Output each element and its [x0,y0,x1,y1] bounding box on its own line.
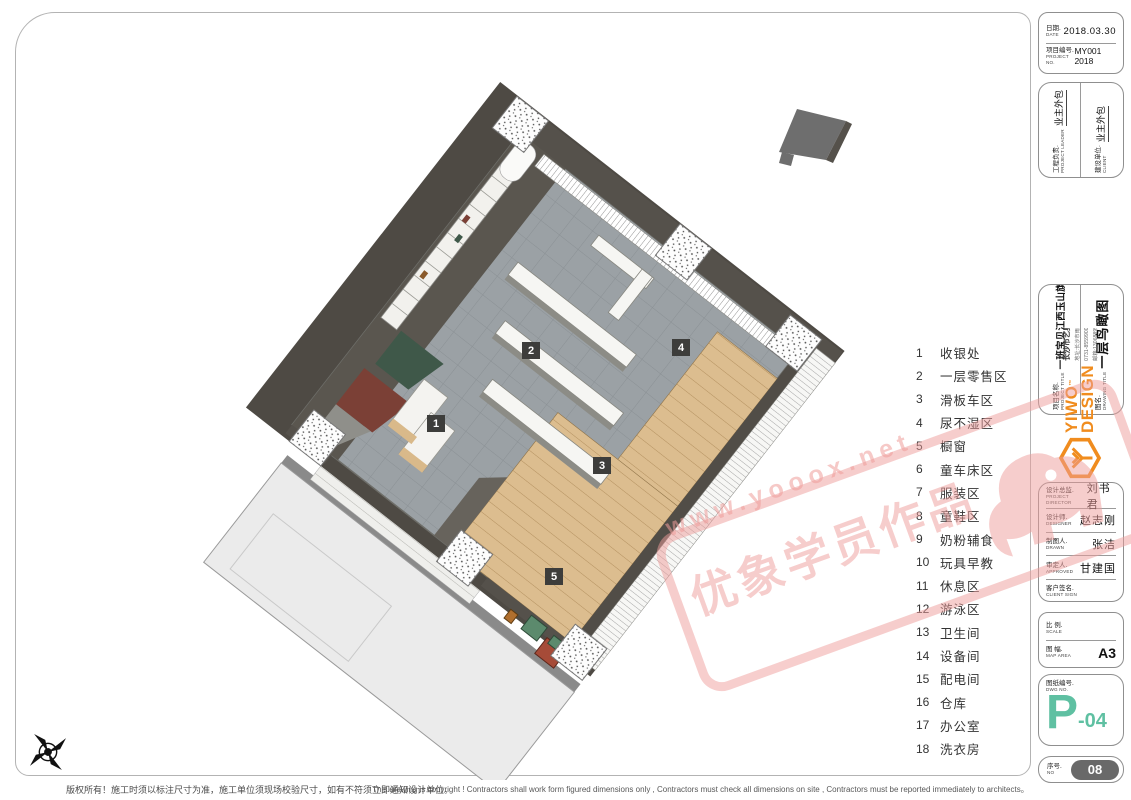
project-no-value: MY001 2018 [1074,46,1116,66]
studio-phone: 0731-85599001 手机:18973138262 [1083,328,1090,361]
legend-item-7: 7服装区 [916,481,1008,504]
dwg-number-box: 图纸编号. DWG NO. P -04 [1038,674,1124,746]
leader-client-box: 工程负责. PROJECT LEADER 业主外包 建设单位. CLIENT 业… [1038,82,1124,178]
sign-panel [779,109,852,166]
legend-item-12: 12游泳区 [916,597,1008,620]
scale-box: 比 例. SCALE 图 幅. MAP AREA A3 [1038,612,1124,668]
plan-marker-4: 4 [672,339,690,356]
plan-marker-5: 5 [545,568,563,585]
legend-item-3: 3滑板车区 [916,388,1008,411]
studio-email: 邮箱:1306889502@QQ.com [1092,328,1099,361]
legend-item-1: 1收银处 [916,341,1008,364]
date-project-box: 日期. DATE 2018.03.30 项目编号. PROJECT No. MY… [1038,12,1124,74]
legend-list: 1收银处2一层零售区3滑板车区4尿不湿区5橱窗6童车床区7服装区8童鞋区9奶粉辅… [916,341,1008,760]
signature-row: 制图人.DRAWN张洁 [1046,533,1116,557]
signature-row: 设计总监.PROJECT DIRECTOR刘书君 [1046,485,1116,509]
dwg-number: P -04 [1046,693,1116,733]
plan-marker-2: 2 [522,342,540,359]
disclaimer-en: This drawing is copyright ! Contractors … [372,784,1029,795]
legend-item-14: 14设备间 [916,644,1008,667]
signature-row: 设计师.DESIGNER赵志刚 [1046,509,1116,533]
client-value: 业主外包 [1094,106,1109,142]
legend-item-16: 16仓库 [916,690,1008,713]
legend-item-15: 15配电间 [916,667,1008,690]
project-no-label: 项目编号. [1046,47,1074,54]
signature-row: 审定人.APPROVED甘建国 [1046,556,1116,580]
serial-box: 序号. NO 08 [1038,756,1124,783]
signatures-box: 设计总监.PROJECT DIRECTOR刘书君设计师.DESIGNER赵志刚制… [1038,482,1124,602]
legend-item-6: 6童车床区 [916,457,1008,480]
legend-item-17: 17办公室 [916,714,1008,737]
plan-marker-1: 1 [427,415,445,432]
company-logo-block: YIWO™ DESIGN 长沙市艺奥设计工作室 地址:长沙市雨花区 长沙大道东城… [1036,328,1124,480]
signature-row: 客户签名.CLIENT SIGN [1046,580,1116,603]
legend-item-13: 13卫生间 [916,621,1008,644]
legend-item-4: 4尿不湿区 [916,411,1008,434]
brand-design: DESIGN [1080,365,1096,433]
plan-marker-3: 3 [593,457,611,474]
legend-item-8: 8童鞋区 [916,504,1008,527]
studio-name: 长沙市艺奥设计工作室 [1061,328,1072,361]
legend-item-5: 5橱窗 [916,434,1008,457]
legend-item-11: 11休息区 [916,574,1008,597]
north-arrow-icon [22,726,74,783]
legend-item-9: 9奶粉辅食 [916,527,1008,550]
serial-badge: 08 [1071,760,1119,780]
legend-item-10: 10玩具早教 [916,551,1008,574]
legend-item-2: 2一层零售区 [916,364,1008,387]
map-area-value: A3 [1098,645,1116,661]
date-label: 日期. [1046,25,1061,32]
leader-value: 业主外包 [1052,90,1067,126]
studio-address: 地址:长沙市雨花区 长沙大道东城国际1栋902室 [1074,328,1081,361]
yiwo-hexagon-logo-icon [1058,436,1102,480]
date-value: 2018.03.30 [1063,26,1116,37]
floor-plan-drawing [0,0,1030,780]
drawing-sheet: 12345 1收银处2一层零售区3滑板车区4尿不湿区5橱窗6童车床区7服装区8童… [0,0,1131,800]
legend-item-18: 18洗衣房 [916,737,1008,760]
